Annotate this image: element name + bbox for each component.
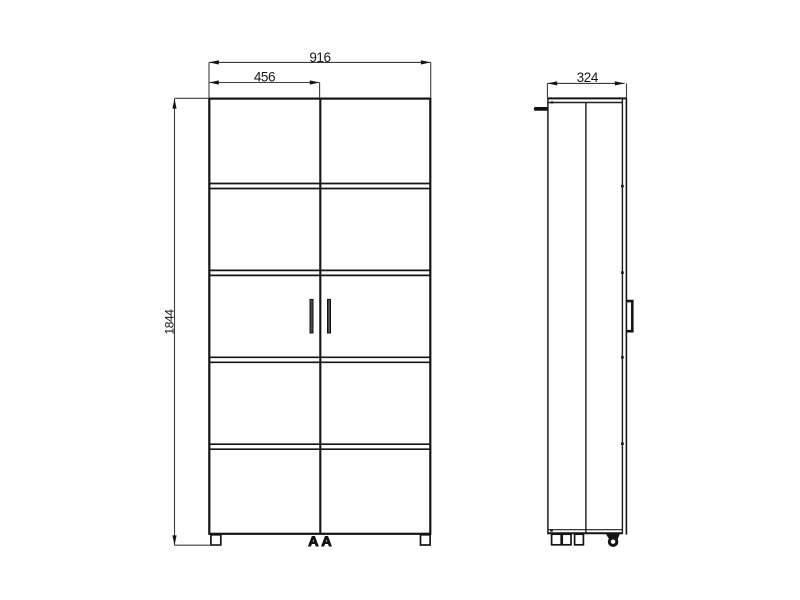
svg-text:A: A <box>308 534 318 550</box>
svg-text:1844: 1844 <box>163 309 177 335</box>
svg-text:A: A <box>321 534 331 550</box>
svg-text:916: 916 <box>309 50 330 65</box>
svg-text:324: 324 <box>577 70 599 85</box>
svg-text:456: 456 <box>254 70 275 85</box>
